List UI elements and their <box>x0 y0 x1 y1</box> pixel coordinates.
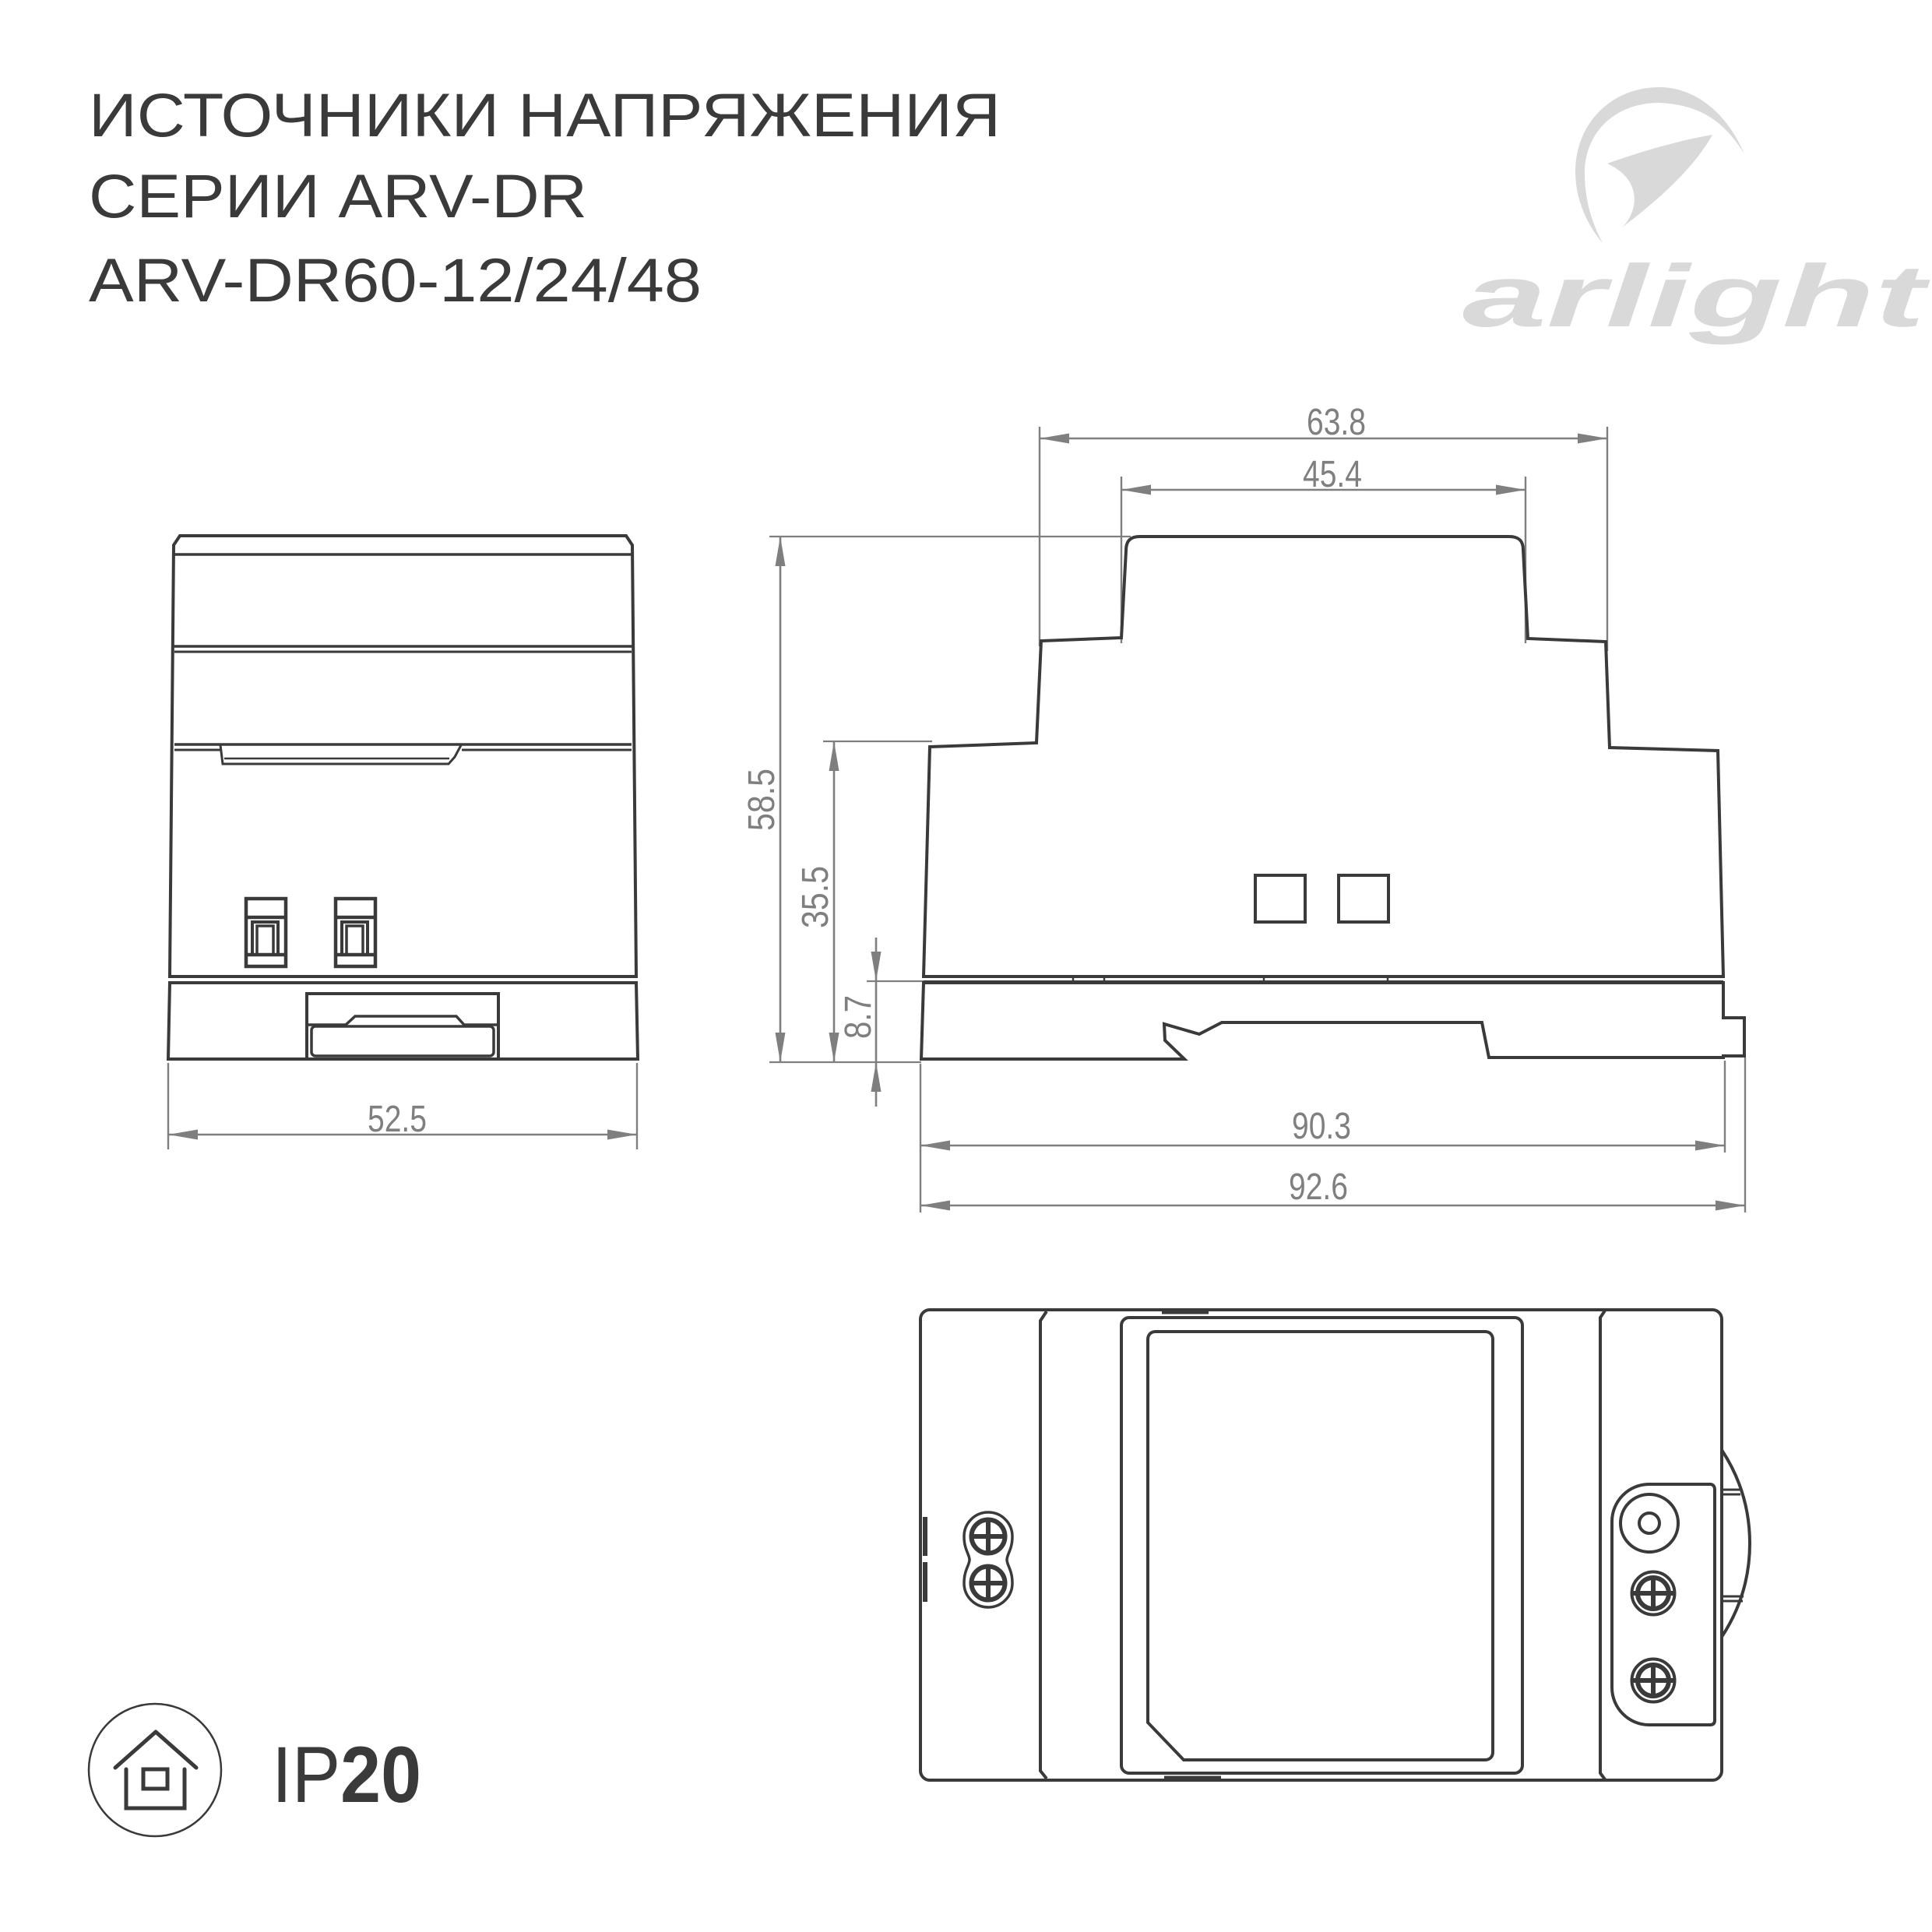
svg-text:58.5: 58.5 <box>741 769 783 831</box>
svg-text:92.6: 92.6 <box>1289 1167 1348 1208</box>
svg-text:35.5: 35.5 <box>795 866 836 928</box>
svg-text:63.8: 63.8 <box>1307 402 1366 443</box>
svg-text:8.7: 8.7 <box>838 995 879 1039</box>
svg-text:90.3: 90.3 <box>1292 1106 1351 1147</box>
svg-text:52.5: 52.5 <box>368 1099 427 1140</box>
svg-text:arlight: arlight <box>1462 247 1931 345</box>
svg-text:ARV-DR60-12/24/48: ARV-DR60-12/24/48 <box>89 245 702 315</box>
svg-text:ИСТОЧНИКИ НАПРЯЖЕНИЯ: ИСТОЧНИКИ НАПРЯЖЕНИЯ <box>89 80 1001 150</box>
svg-text:45.4: 45.4 <box>1303 454 1362 495</box>
svg-text:IP20: IP20 <box>272 1730 421 1819</box>
svg-text:СЕРИИ ARV-DR: СЕРИИ ARV-DR <box>89 161 587 231</box>
